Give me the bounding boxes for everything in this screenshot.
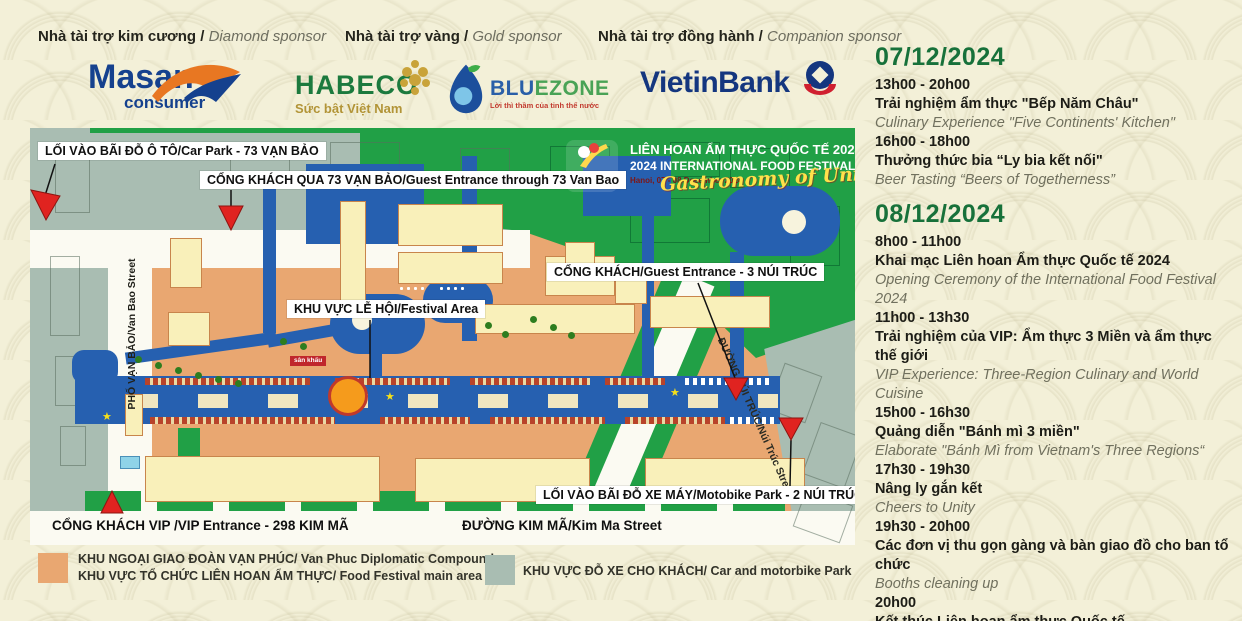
legend-festival-line2: KHU VỰC TỔ CHỨC LIÊN HOAN ẨM THỰC/ Food …	[78, 568, 494, 585]
event-time: 8h00 - 11h00	[875, 233, 1237, 252]
vietinbank-wordmark: VietinBank	[640, 66, 790, 99]
companion-sponsor-label-vi: Nhà tài trợ đồng hành	[598, 28, 755, 45]
event-title-en: Elaborate "Bánh Mì from Vietnam's Three …	[875, 442, 1237, 461]
event-title-vi: Trải nghiệm của VIP: Ẩm thực 3 Miền và ẩ…	[875, 328, 1237, 366]
vietinbank-logo: VietinBank	[640, 66, 790, 100]
legend-text-festival: KHU NGOẠI GIAO ĐOÀN VẠN PHÚC/ Van Phuc D…	[78, 551, 494, 585]
schedule-date: 07/12/2024	[875, 43, 1237, 72]
companion-sponsor-title: Nhà tài trợ đồng hành / Companion sponso…	[598, 28, 901, 45]
bluezone-drop-icon	[448, 62, 484, 114]
event-title-en: Cheers to Unity	[875, 499, 1237, 518]
event-title-vi: Nâng ly gắn kết	[875, 480, 1237, 499]
bluezone-wordmark: BLUEZONE	[490, 78, 610, 99]
legend-text-parking: KHU VỰC ĐỖ XE CHO KHÁCH/ Car and motorbi…	[523, 563, 851, 580]
label-motobike-park: LỐI VÀO BÃI ĐỖ XE MÁY/Motobike Park - 2 …	[536, 486, 855, 504]
masan-swoosh-icon	[150, 56, 242, 104]
event-title-en: Booths cleaning up	[875, 575, 1237, 594]
bluezone-tagline: Lời thì thầm của tinh thể nước	[490, 101, 610, 110]
event-time: 13h00 - 20h00	[875, 76, 1237, 95]
event-time: 15h00 - 16h30	[875, 404, 1237, 423]
event-title-en: VIP Experience: Three-Region Culinary an…	[875, 366, 1237, 404]
event-title-vi: Kết thúc Liên hoan ẩm thực Quốc tế	[875, 613, 1237, 621]
event-time: 17h30 - 19h30	[875, 461, 1237, 480]
site-map: ★★★ LIÊN HOAN ẨM THỰC QUỐC TẾ 2024 2024 …	[30, 128, 855, 545]
event-time: 11h00 - 13h30	[875, 309, 1237, 328]
legend-swatch-festival	[38, 553, 68, 583]
event-title-vi: Khai mạc Liên hoan Ẩm thực Quốc tế 2024	[875, 252, 1237, 271]
vietinbank-coin-icon	[800, 58, 840, 100]
label-festival-area: KHU VỰC LỄ HỘI/Festival Area	[287, 300, 485, 318]
habeco-logo: HABECO Sức bật Việt Nam	[295, 72, 418, 116]
masan-logo: Masan consumer	[88, 60, 238, 111]
diamond-sponsor-title: Nhà tài trợ kim cương / Diamond sponsor	[38, 28, 326, 45]
event-title-en: Opening Ceremony of the International Fo…	[875, 271, 1237, 309]
label-guest-entrance-73: CỔNG KHÁCH QUA 73 VẠN BẢO/Guest Entrance…	[200, 171, 626, 189]
diamond-sponsor-label-en: Diamond sponsor	[209, 28, 327, 45]
event-title-en: Beer Tasting “Beers of Togetherness”	[875, 171, 1237, 190]
label-guest-entrance-3: CỔNG KHÁCH/Guest Entrance - 3 NÚI TRÚC	[547, 263, 824, 281]
event-time: 19h30 - 20h00	[875, 518, 1237, 537]
schedule-date: 08/12/2024	[875, 200, 1237, 229]
gold-sponsor-label-en: Gold sponsor	[472, 28, 561, 45]
schedule-panel: 07/12/202413h00 - 20h00Trải nghiệm ẩm th…	[875, 33, 1237, 621]
legend-parking-line1: KHU VỰC ĐỖ XE CHO KHÁCH/ Car and motorbi…	[523, 563, 851, 580]
event-time: 16h00 - 18h00	[875, 133, 1237, 152]
legend-swatch-parking	[485, 555, 515, 585]
event-title-vi: Các đơn vị thu gọn gàng và bàn giao đồ c…	[875, 537, 1237, 575]
habeco-tagline: Sức bật Việt Nam	[295, 101, 418, 116]
label-vip-entrance: CỔNG KHÁCH VIP /VIP Entrance - 298 KIM M…	[45, 516, 356, 535]
habeco-hops-icon	[395, 56, 435, 96]
gold-sponsor-title: Nhà tài trợ vàng / Gold sponsor	[345, 28, 562, 45]
map-marker-overlay	[30, 128, 855, 545]
gold-sponsor-label-vi: Nhà tài trợ vàng	[345, 28, 460, 45]
diamond-sponsor-label-vi: Nhà tài trợ kim cương	[38, 28, 196, 45]
event-title-vi: Trải nghiệm ẩm thực "Bếp Năm Châu"	[875, 95, 1237, 114]
legend-festival-line1: KHU NGOẠI GIAO ĐOÀN VẠN PHÚC/ Van Phuc D…	[78, 551, 494, 568]
label-kim-ma-street: ĐƯỜNG KIM MÃ/Kim Ma Street	[455, 516, 669, 535]
event-time: 20h00	[875, 594, 1237, 613]
event-title-en: Culinary Experience "Five Continents' Ki…	[875, 114, 1237, 133]
label-car-park: LỐI VÀO BÃI ĐỖ Ô TÔ/Car Park - 73 VẠN BẢ…	[38, 142, 326, 160]
festival-poster: Nhà tài trợ kim cương / Diamond sponsor …	[0, 0, 1242, 621]
event-title-vi: Thưởng thức bia “Ly bia kết nối"	[875, 152, 1237, 171]
event-title-vi: Quảng diễn "Bánh mì 3 miền"	[875, 423, 1237, 442]
bluezone-logo: BLUEZONE Lời thì thầm của tinh thể nước	[448, 62, 610, 110]
